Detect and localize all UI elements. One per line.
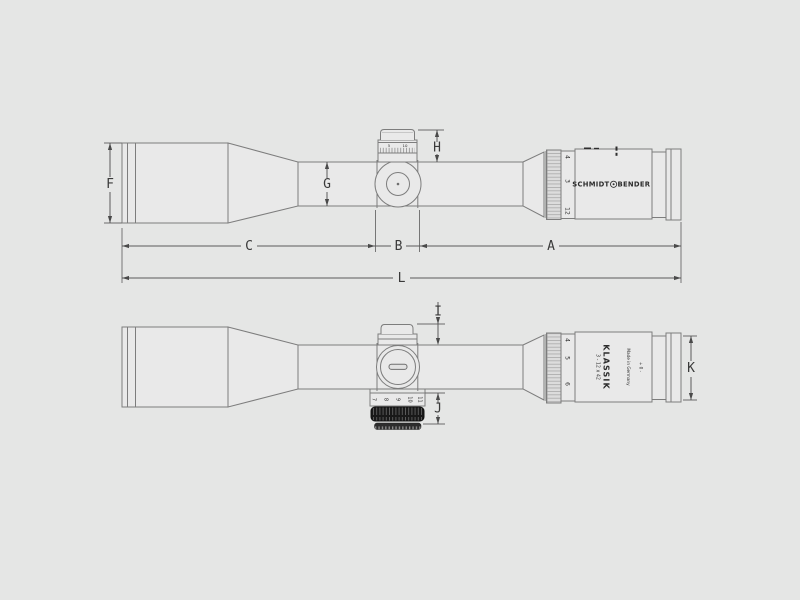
origin-text: Made in Germany — [626, 348, 631, 386]
dimension-label-F: F — [106, 177, 114, 192]
dimension-label-J: J — [434, 402, 442, 417]
turret-scale-number: 10 — [403, 143, 408, 148]
brand-text-right: BENDER — [618, 181, 651, 189]
mag-ring-number: 4 — [564, 155, 571, 159]
dimension-label-H: H — [433, 141, 441, 156]
magnification-knurled-ring — [547, 333, 562, 403]
drawing-canvas: 5 10 4 3 12 SCHMIDT — [0, 0, 800, 600]
model-magnification-text: 3 - 12 x 42 — [595, 354, 601, 380]
distance-ring-number: 7 — [371, 398, 377, 401]
dimension-label-K: K — [687, 361, 695, 376]
dimension-label-L: L — [398, 271, 406, 286]
eyepiece-assembly: 4 5 6 3 - 12 x 42 KLASSIK Made in German… — [523, 332, 681, 403]
scope-technical-drawing: 5 10 4 3 12 SCHMIDT — [0, 0, 800, 600]
elevation-turret-profile — [378, 325, 417, 346]
elevation-turret: 5 10 — [378, 130, 417, 163]
mag-ring-number: 4 — [564, 338, 571, 342]
turret-cap — [381, 325, 413, 335]
turret-tick-scale — [380, 148, 415, 153]
scope-top-view: 5 10 4 3 12 SCHMIDT — [104, 130, 681, 287]
eyepiece-taper — [523, 152, 544, 217]
zero-adjust-text: + 0 - — [639, 362, 644, 373]
eyepiece-step-ring — [652, 152, 666, 218]
eyepiece-step-ring — [652, 336, 666, 400]
eyepiece-end-ring — [666, 149, 681, 220]
coin-slot — [389, 364, 407, 369]
magnification-number-ring — [561, 334, 575, 401]
objective-bell — [122, 143, 298, 223]
eyepiece-assembly: 4 3 12 SCHMIDT BENDER — [523, 147, 681, 221]
scope-bottom-view: 7 8 9 10 11 4 5 6 3 - 12 x 42 KLASSIK Ma… — [122, 302, 697, 430]
distance-ring-number: 9 — [395, 398, 401, 401]
mag-ring-number: 6 — [564, 382, 571, 386]
distance-ring-number: 10 — [407, 396, 413, 402]
dimension-label-A: A — [547, 239, 555, 254]
mag-ring-number: 3 — [564, 179, 571, 183]
turret-cap — [381, 130, 415, 141]
turret-center-dot — [397, 183, 400, 186]
magnification-knurled-ring — [547, 150, 562, 220]
dimension-label-G: G — [323, 177, 331, 192]
distance-ring-number: 11 — [417, 396, 423, 402]
dimension-label-I: I — [434, 305, 442, 320]
eyepiece-end-ring — [666, 333, 681, 402]
fine-scale-band — [375, 423, 422, 430]
mag-ring-number: 12 — [564, 207, 571, 215]
dimension-label-B: B — [395, 239, 403, 254]
turret-saddle — [375, 160, 421, 208]
bell-taper — [228, 143, 298, 223]
distance-ring-assembly: 7 8 9 10 11 — [370, 389, 425, 430]
objective-bell — [122, 327, 298, 407]
brand-text-left: SCHMIDT — [572, 181, 609, 189]
distance-ring-number: 8 — [383, 398, 389, 401]
eyepiece-taper — [523, 335, 544, 400]
dark-knurled-ring — [371, 407, 424, 421]
dimension-label-C: C — [245, 239, 253, 254]
model-name-text: KLASSIK — [602, 344, 611, 390]
mag-ring-number: 5 — [564, 356, 571, 360]
bell-taper — [228, 327, 298, 407]
